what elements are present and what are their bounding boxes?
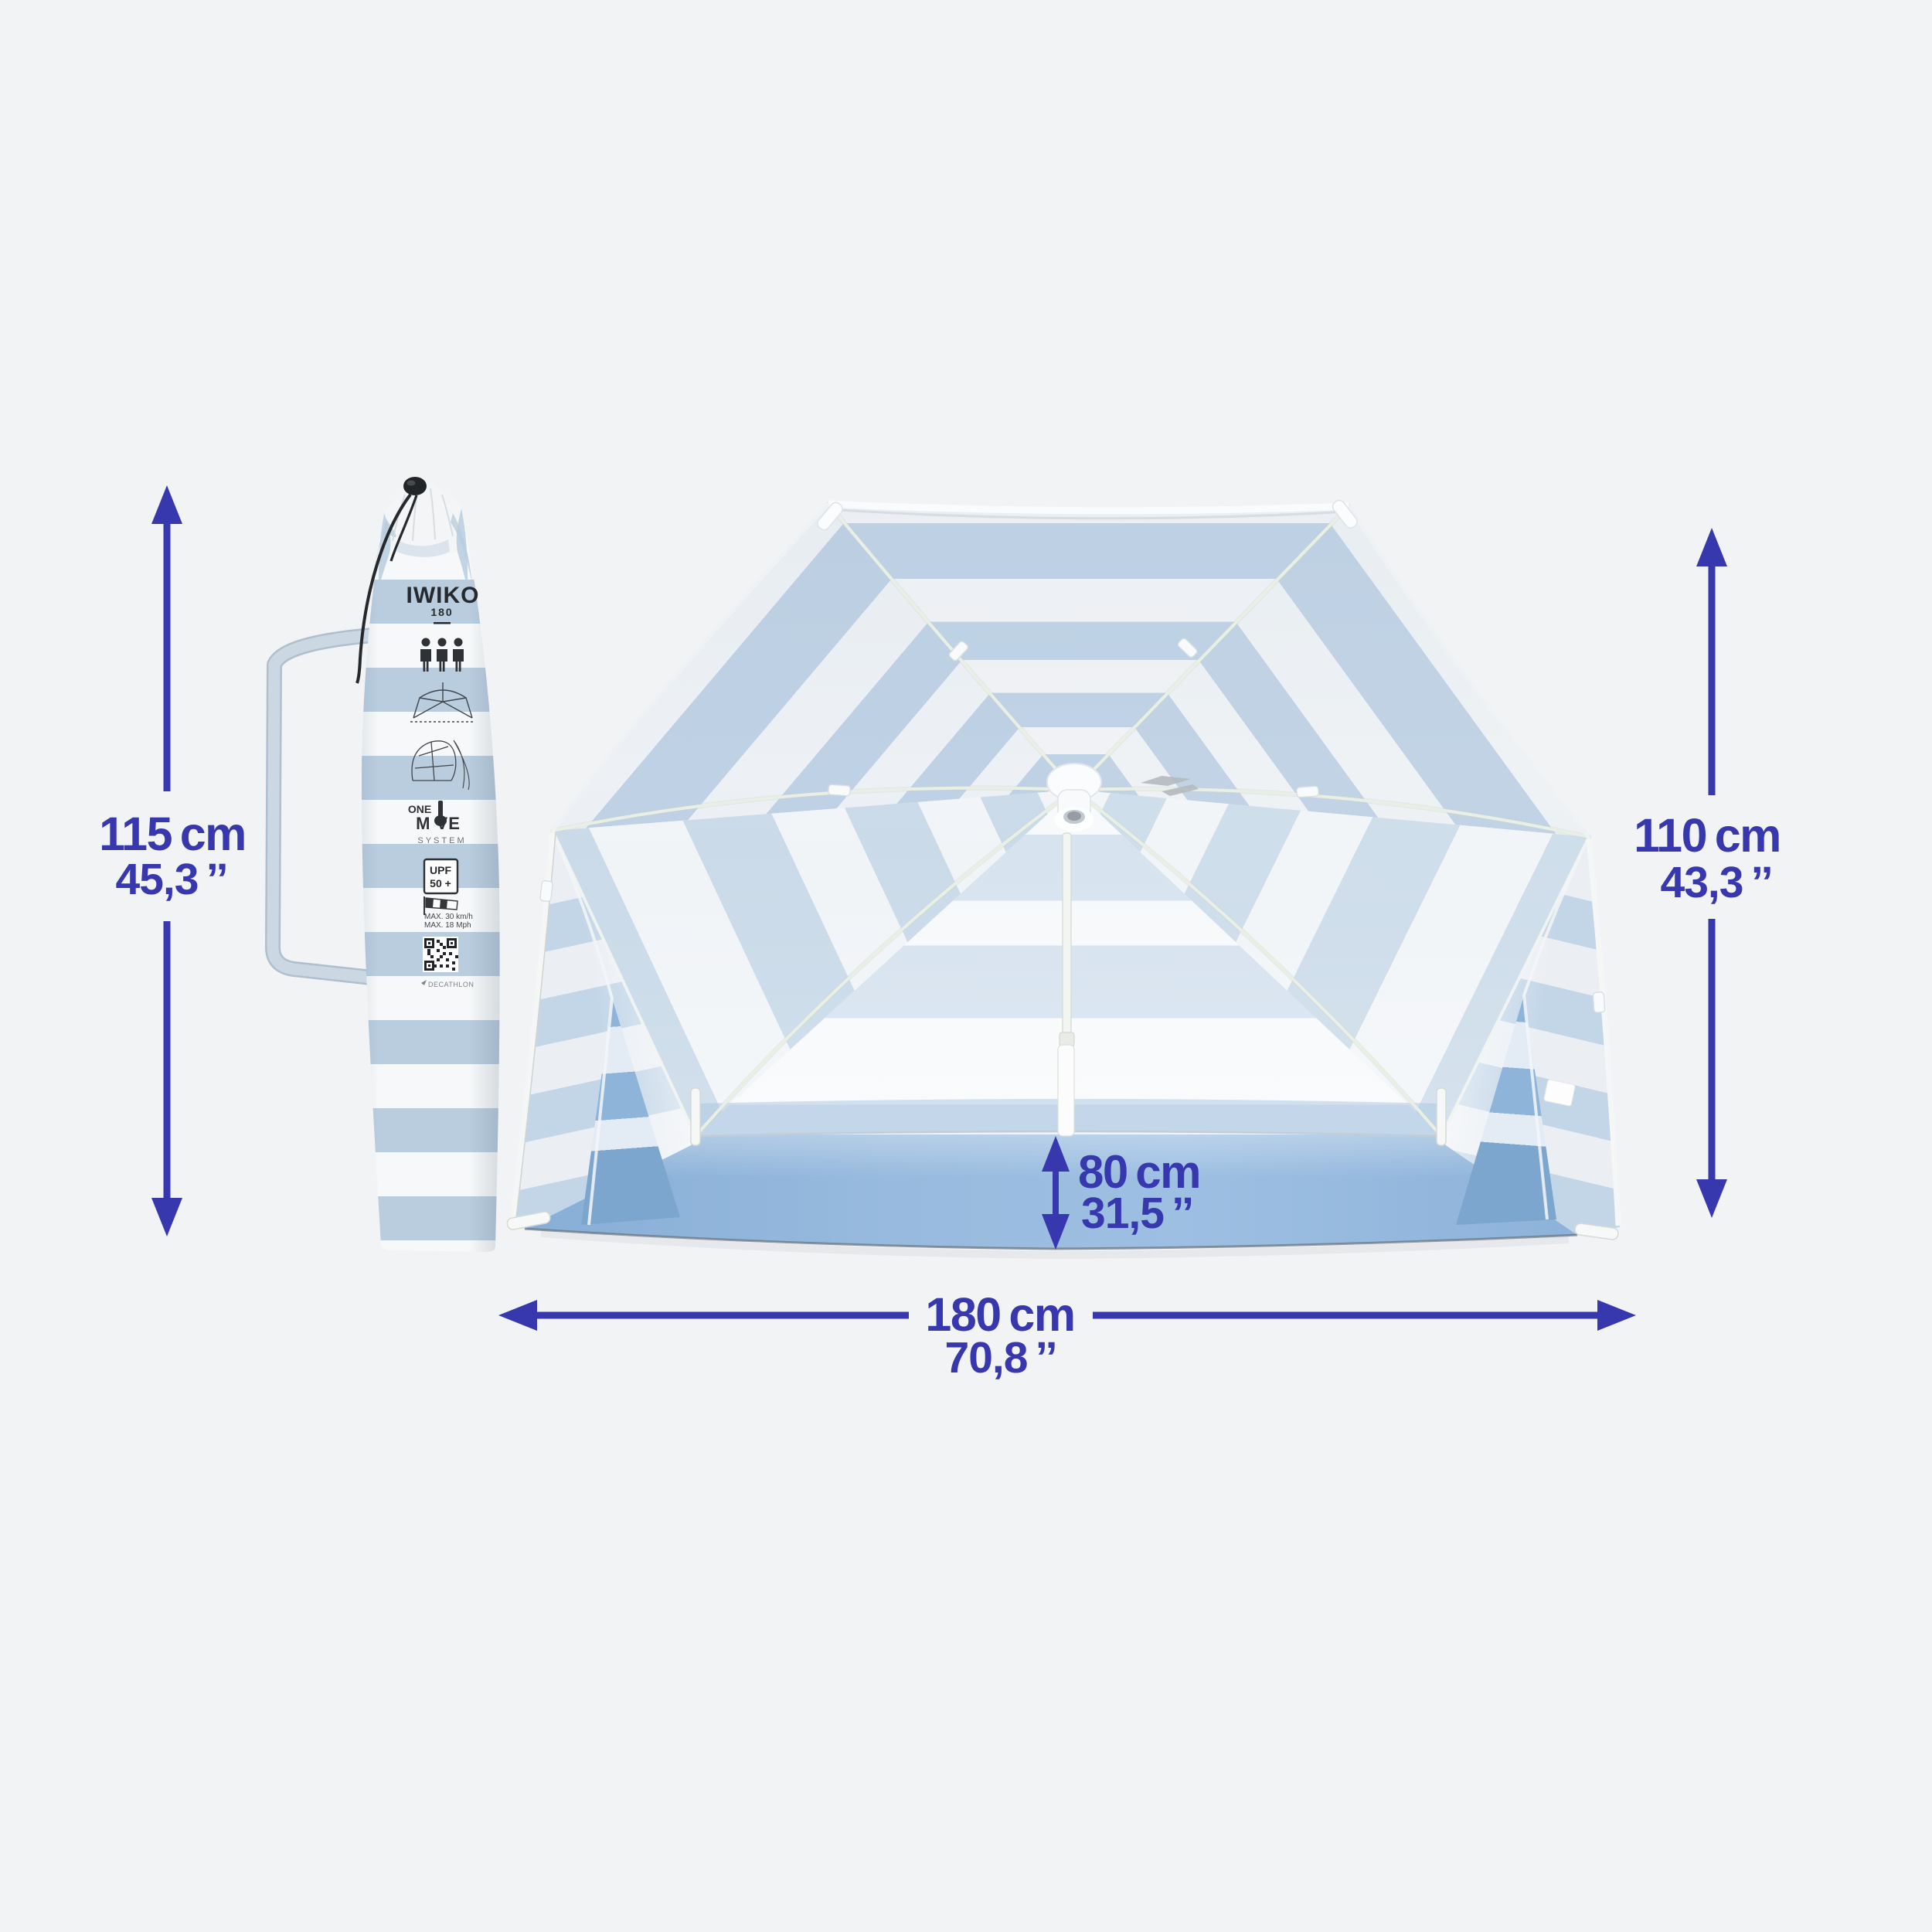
svg-text:IWIKO: IWIKO (406, 583, 480, 608)
svg-text:70,8 ’’: 70,8 ’’ (945, 1333, 1057, 1383)
svg-text:DECATHLON: DECATHLON (428, 981, 474, 988)
svg-text:31,5 ’’: 31,5 ’’ (1081, 1189, 1193, 1238)
svg-text:45,3 ’’: 45,3 ’’ (116, 855, 228, 904)
svg-text:SYSTEM: SYSTEM (417, 836, 466, 845)
svg-text:110 cm: 110 cm (1634, 809, 1781, 862)
svg-text:MAX. 30 km/h: MAX. 30 km/h (424, 913, 473, 921)
svg-text:180: 180 (430, 606, 453, 618)
svg-text:50 +: 50 + (430, 877, 451, 889)
svg-text:UPF: UPF (430, 864, 451, 876)
svg-text:115 cm: 115 cm (99, 808, 246, 860)
svg-text:MAX. 18 Mph: MAX. 18 Mph (424, 921, 471, 930)
svg-text:43,3 ’’: 43,3 ’’ (1661, 858, 1773, 907)
